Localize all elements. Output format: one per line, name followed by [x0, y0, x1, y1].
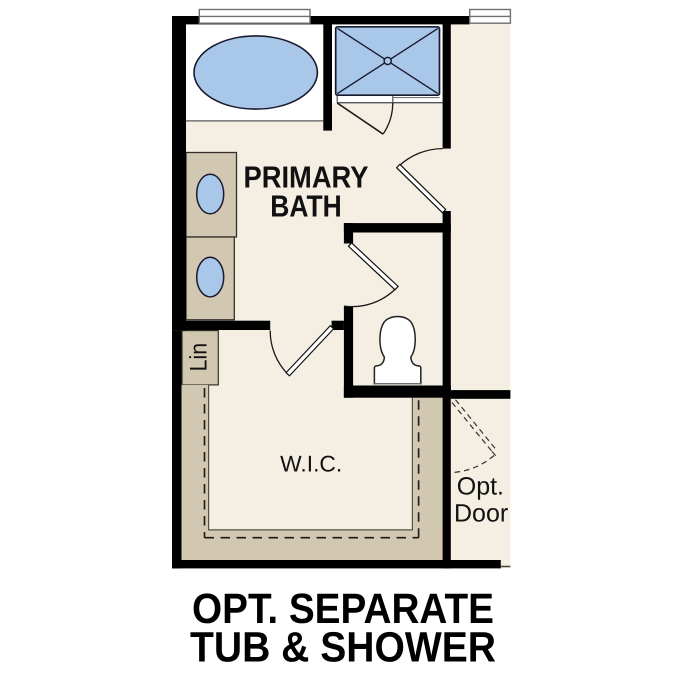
- svg-text:Opt.: Opt.: [457, 473, 504, 501]
- svg-text:Lin: Lin: [185, 343, 212, 372]
- svg-text:TUB & SHOWER: TUB & SHOWER: [190, 625, 496, 672]
- svg-text:Door: Door: [454, 500, 508, 528]
- svg-text:BATH: BATH: [270, 189, 342, 223]
- svg-text:W.I.C.: W.I.C.: [280, 451, 342, 477]
